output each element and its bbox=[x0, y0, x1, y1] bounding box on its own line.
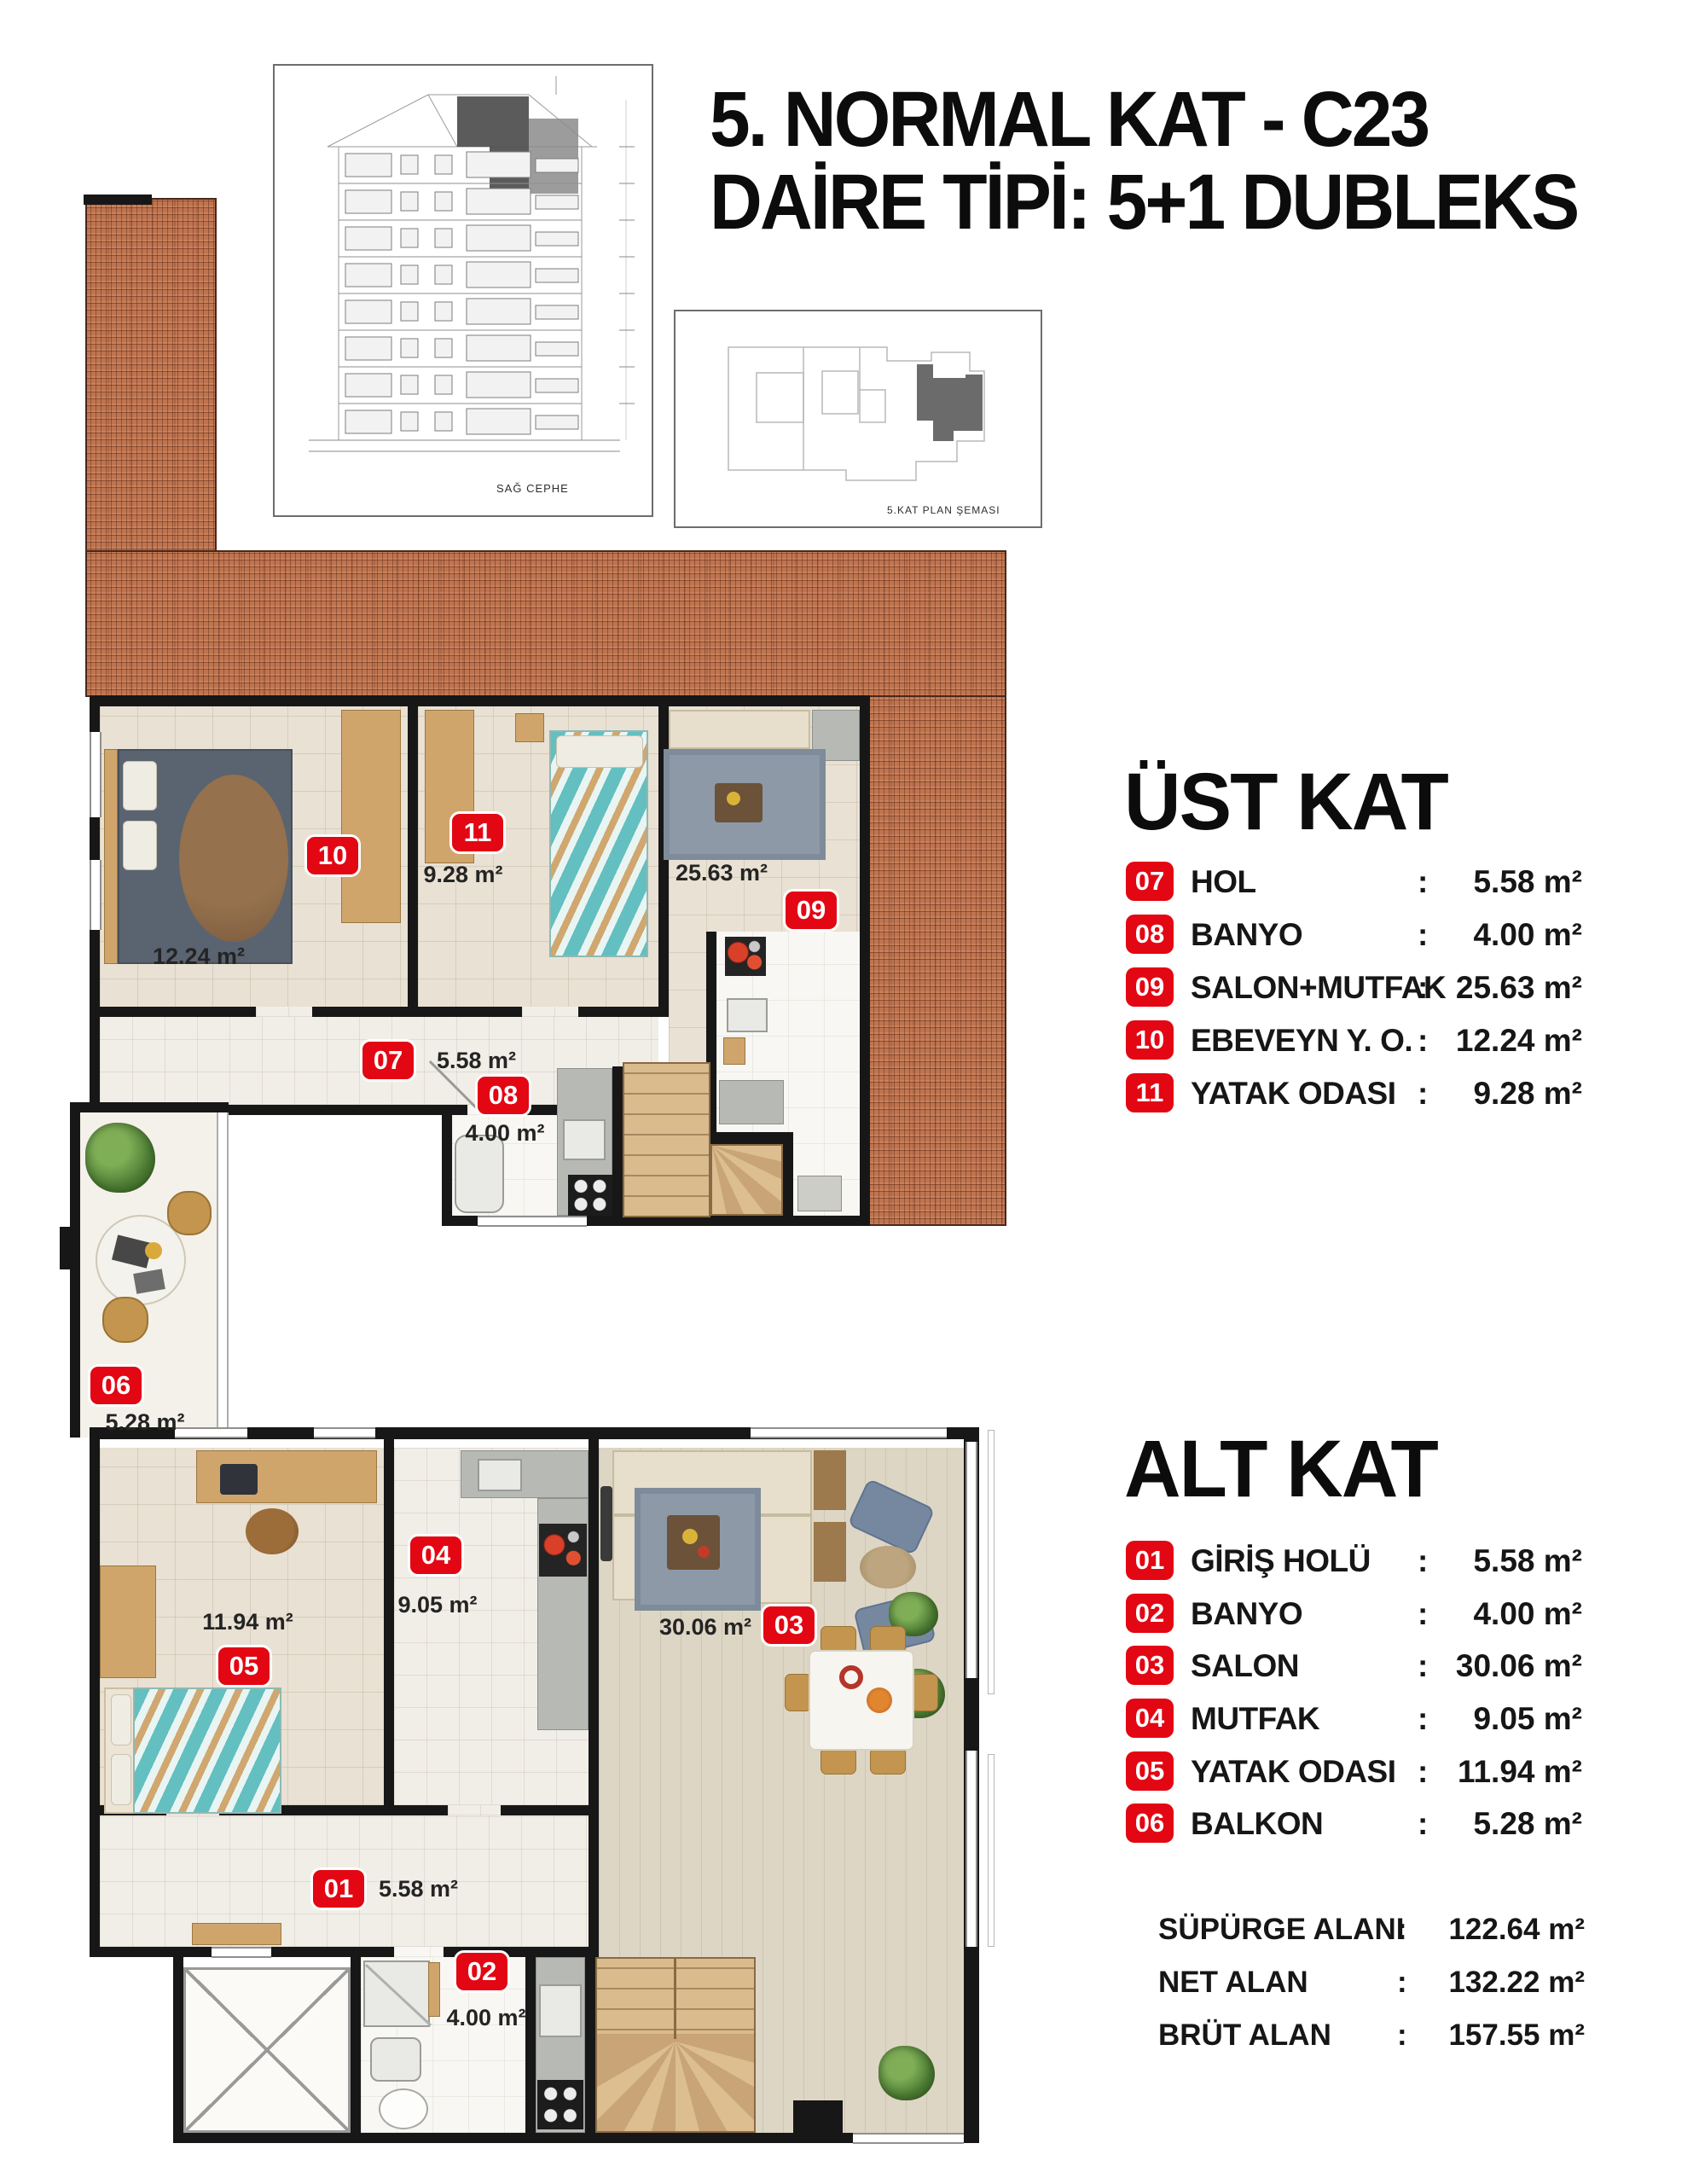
colon: : bbox=[1418, 1754, 1428, 1790]
window bbox=[90, 860, 101, 930]
room-area-09: 25.63 m² bbox=[649, 860, 794, 886]
room-name: SALON bbox=[1191, 1648, 1299, 1684]
room-area-06: 5.28 m² bbox=[81, 1409, 209, 1436]
colon: : bbox=[1418, 970, 1428, 1006]
stove bbox=[539, 1524, 587, 1577]
plant bbox=[878, 2046, 935, 2100]
door-opening bbox=[522, 1007, 578, 1017]
wall bbox=[525, 1957, 536, 2133]
colon: : bbox=[1418, 1806, 1428, 1842]
french-balcony-rail bbox=[988, 1430, 994, 1694]
stove bbox=[568, 1175, 612, 1216]
roof-band-right bbox=[868, 695, 1006, 1226]
counter bbox=[719, 1080, 784, 1124]
window bbox=[314, 1427, 375, 1438]
door-opening bbox=[256, 1007, 312, 1017]
colon: : bbox=[1418, 1596, 1428, 1632]
window bbox=[90, 732, 101, 817]
roof-strip-left bbox=[85, 198, 217, 556]
room-name: BANYO bbox=[1191, 1596, 1302, 1632]
room-name: YATAK ODASI bbox=[1191, 1076, 1396, 1112]
elevation-label: SAĞ CEPHE bbox=[496, 482, 569, 495]
room-number-badge: 11 bbox=[1126, 1073, 1174, 1112]
room-area: 5.28 m² bbox=[1473, 1806, 1582, 1842]
balcony-glazing bbox=[217, 1112, 229, 1438]
room-number-badge: 02 bbox=[1126, 1594, 1174, 1633]
wall bbox=[351, 1957, 361, 2133]
room-badge-08: 08 bbox=[475, 1074, 531, 1117]
wall bbox=[70, 1102, 80, 1438]
legend-row: 01 GİRİŞ HOLÜ : 5.58 m² bbox=[1126, 1541, 1582, 1582]
sink bbox=[478, 1459, 522, 1491]
window bbox=[751, 1427, 947, 1438]
chair bbox=[102, 1297, 148, 1343]
room-name: HOL bbox=[1191, 864, 1256, 900]
summary-row: NET ALAN : 132.22 m² bbox=[1158, 1966, 1585, 2005]
room-area: 11.94 m² bbox=[1458, 1754, 1582, 1790]
pillow bbox=[123, 761, 157, 810]
summary-row: SÜPÜRGE ALANI : 122.64 m² bbox=[1158, 1913, 1585, 1952]
wall bbox=[60, 1227, 70, 1269]
room-badge-02: 02 bbox=[454, 1950, 510, 1993]
colon: : bbox=[1397, 1913, 1407, 1947]
toilet bbox=[379, 2088, 428, 2129]
room-area: 9.28 m² bbox=[1473, 1076, 1582, 1112]
bed-blanket bbox=[133, 1687, 281, 1814]
pillow bbox=[111, 1694, 131, 1745]
chair bbox=[167, 1191, 212, 1235]
room-area-05: 11.94 m² bbox=[173, 1609, 322, 1635]
legend-row: 08 BANYO : 4.00 m² bbox=[1126, 915, 1582, 955]
dining-chair bbox=[911, 1674, 938, 1711]
room-area: 4.00 m² bbox=[1473, 917, 1582, 953]
window bbox=[478, 1216, 587, 1227]
decor bbox=[682, 1529, 698, 1544]
bed-blanket bbox=[179, 775, 288, 942]
colon: : bbox=[1418, 1701, 1428, 1737]
decor bbox=[727, 792, 740, 805]
colon: : bbox=[1418, 1023, 1428, 1059]
summary-value: 132.22 m² bbox=[1448, 1966, 1585, 2000]
room-area: 30.06 m² bbox=[1456, 1648, 1582, 1684]
room-number-badge: 07 bbox=[1126, 862, 1174, 901]
page-title-line1: 5. NORMAL KAT - C23 bbox=[710, 78, 1577, 161]
sideboard bbox=[814, 1450, 846, 1510]
dining-chair bbox=[821, 1747, 856, 1774]
room-badge-09: 09 bbox=[783, 889, 839, 932]
brochure-page: 5. NORMAL KAT - C23 DAİRE TİPİ: 5+1 DUBL… bbox=[0, 0, 1699, 2184]
summary-value: 122.64 m² bbox=[1448, 1913, 1585, 1947]
room-name: MUTFAK bbox=[1191, 1701, 1319, 1737]
wall bbox=[90, 1947, 599, 1957]
door-opening bbox=[394, 1947, 444, 1957]
wall bbox=[585, 1957, 595, 2133]
key-plan-box: 5.KAT PLAN ŞEMASI bbox=[674, 310, 1042, 528]
room-area-08: 4.00 m² bbox=[441, 1120, 569, 1147]
sideboard bbox=[814, 1522, 846, 1582]
legend-row: 11 YATAK ODASI : 9.28 m² bbox=[1126, 1073, 1582, 1114]
summary-label: NET ALAN bbox=[1158, 1966, 1308, 2000]
wall bbox=[384, 1439, 394, 1815]
french-balcony-rail bbox=[988, 1754, 994, 1947]
wall bbox=[589, 1815, 599, 1957]
upper-floor-section-title: ÜST KAT bbox=[1124, 756, 1447, 849]
stool bbox=[723, 1037, 745, 1065]
room-badge-04: 04 bbox=[408, 1534, 464, 1577]
legend-row: 03 SALON : 30.06 m² bbox=[1126, 1646, 1582, 1687]
wall bbox=[173, 1957, 183, 2143]
roof-band-top bbox=[85, 550, 1006, 697]
window bbox=[853, 2133, 964, 2144]
stairs-rail bbox=[674, 1957, 676, 2039]
room-name: EBEVEYN Y. O. bbox=[1191, 1023, 1412, 1059]
wardrobe bbox=[100, 1565, 156, 1678]
pillow bbox=[123, 821, 157, 870]
room-badge-01: 01 bbox=[310, 1867, 367, 1910]
summary-label: SÜPÜRGE ALANI bbox=[1158, 1913, 1404, 1947]
colon: : bbox=[1418, 1076, 1428, 1112]
room-number-badge: 06 bbox=[1126, 1804, 1174, 1843]
room-area: 4.00 m² bbox=[1473, 1596, 1582, 1632]
nightstand bbox=[515, 713, 544, 742]
decor bbox=[698, 1546, 710, 1558]
room-name: GİRİŞ HOLÜ bbox=[1191, 1543, 1371, 1579]
stairs-fan bbox=[710, 1144, 783, 1216]
wall bbox=[90, 695, 870, 706]
decor bbox=[867, 1687, 892, 1713]
summary-label: BRÜT ALAN bbox=[1158, 2018, 1331, 2053]
lower-floor-section-title: ALT KAT bbox=[1124, 1423, 1437, 1516]
room-area: 5.58 m² bbox=[1473, 864, 1582, 900]
shoe-cabinet bbox=[192, 1923, 281, 1945]
wall bbox=[793, 2100, 843, 2133]
elevator-door bbox=[212, 1947, 271, 1958]
room-badge-11: 11 bbox=[449, 811, 506, 854]
door-opening bbox=[448, 1805, 501, 1815]
stairs-fan bbox=[597, 2034, 754, 2131]
colon: : bbox=[1418, 1648, 1428, 1684]
wall bbox=[860, 695, 870, 1226]
tv-unit bbox=[600, 1486, 612, 1561]
key-plan-drawing bbox=[676, 311, 1041, 526]
legend-row: 10 EBEVEYN Y. O. : 12.24 m² bbox=[1126, 1020, 1582, 1061]
wall bbox=[84, 195, 152, 205]
room-area: 5.58 m² bbox=[1473, 1543, 1582, 1579]
pillow bbox=[111, 1754, 131, 1805]
wall bbox=[70, 1102, 229, 1112]
room-area-10: 12.24 m² bbox=[126, 944, 271, 970]
wall bbox=[710, 1132, 793, 1144]
page-title: 5. NORMAL KAT - C23 DAİRE TİPİ: 5+1 DUBL… bbox=[710, 78, 1577, 244]
legend-row: 05 YATAK ODASI : 11.94 m² bbox=[1126, 1751, 1582, 1792]
room-badge-10: 10 bbox=[304, 834, 361, 877]
wardrobe bbox=[341, 710, 401, 923]
room-badge-05: 05 bbox=[216, 1645, 272, 1687]
window bbox=[965, 1751, 977, 1947]
room-number-badge: 05 bbox=[1126, 1751, 1174, 1791]
wall bbox=[612, 1066, 623, 1226]
pillow bbox=[556, 735, 643, 768]
legend-row: 09 SALON+MUTFAK : 25.63 m² bbox=[1126, 967, 1582, 1008]
dining-chair bbox=[870, 1747, 906, 1774]
room-name: BANYO bbox=[1191, 917, 1302, 953]
room-area: 9.05 m² bbox=[1473, 1701, 1582, 1737]
stairs bbox=[623, 1062, 710, 1217]
page-title-line2: DAİRE TİPİ: 5+1 DUBLEKS bbox=[710, 161, 1577, 244]
side-table bbox=[797, 1176, 842, 1211]
room-name: BALKON bbox=[1191, 1806, 1323, 1842]
legend-row: 07 HOL : 5.58 m² bbox=[1126, 862, 1582, 903]
room-number-badge: 01 bbox=[1126, 1541, 1174, 1580]
room-number-badge: 04 bbox=[1126, 1699, 1174, 1738]
room-area-11: 9.28 m² bbox=[399, 862, 527, 888]
decor bbox=[145, 1242, 162, 1259]
wall bbox=[783, 1143, 793, 1217]
colon: : bbox=[1418, 864, 1428, 900]
colon: : bbox=[1397, 2018, 1407, 2053]
sink bbox=[563, 1119, 606, 1160]
room-badge-06: 06 bbox=[88, 1364, 144, 1407]
colon: : bbox=[1418, 1543, 1428, 1579]
room-number-badge: 08 bbox=[1126, 915, 1174, 954]
room-name: SALON+MUTFAK bbox=[1191, 970, 1446, 1006]
room-area-04: 9.05 m² bbox=[374, 1592, 502, 1618]
room-number-badge: 03 bbox=[1126, 1646, 1174, 1685]
wall bbox=[90, 1439, 100, 1957]
summary-value: 157.55 m² bbox=[1448, 2018, 1585, 2053]
plant bbox=[85, 1123, 155, 1193]
sofa bbox=[669, 710, 810, 749]
room-area-01: 5.58 m² bbox=[379, 1876, 498, 1902]
room-area-03: 30.06 m² bbox=[633, 1614, 778, 1641]
elevation-drawing bbox=[275, 66, 652, 515]
room-badge-07: 07 bbox=[360, 1039, 416, 1082]
sink bbox=[370, 2037, 421, 2082]
decor bbox=[839, 1665, 863, 1689]
key-plan-label: 5.KAT PLAN ŞEMASI bbox=[887, 504, 1000, 516]
summary-row: BRÜT ALAN : 157.55 m² bbox=[1158, 2018, 1585, 2058]
legend-row: 02 BANYO : 4.00 m² bbox=[1126, 1594, 1582, 1635]
dining-table bbox=[809, 1650, 914, 1751]
room-area: 12.24 m² bbox=[1456, 1023, 1582, 1059]
wall bbox=[589, 1439, 599, 1815]
legend-row: 06 BALKON : 5.28 m² bbox=[1126, 1804, 1582, 1844]
room-area: 25.63 m² bbox=[1456, 970, 1582, 1006]
round-rug bbox=[860, 1546, 916, 1589]
window bbox=[965, 1442, 977, 1678]
colon: : bbox=[1418, 917, 1428, 953]
sink bbox=[727, 998, 768, 1032]
room-number-badge: 10 bbox=[1126, 1020, 1174, 1060]
legend-row: 04 MUTFAK : 9.05 m² bbox=[1126, 1699, 1582, 1740]
desk-chair bbox=[246, 1508, 299, 1554]
colon: : bbox=[1397, 1966, 1407, 2000]
stove bbox=[537, 2080, 583, 2129]
room-number-badge: 09 bbox=[1126, 967, 1174, 1007]
elevator bbox=[183, 1967, 351, 2133]
bed-headboard bbox=[104, 749, 118, 964]
room-area-07: 5.58 m² bbox=[437, 1048, 556, 1074]
elevation-drawing-box: SAĞ CEPHE bbox=[273, 64, 653, 517]
laptop bbox=[220, 1464, 258, 1495]
room-area-02: 4.00 m² bbox=[422, 2005, 550, 2031]
stove bbox=[725, 937, 766, 976]
room-name: YATAK ODASI bbox=[1191, 1754, 1396, 1790]
